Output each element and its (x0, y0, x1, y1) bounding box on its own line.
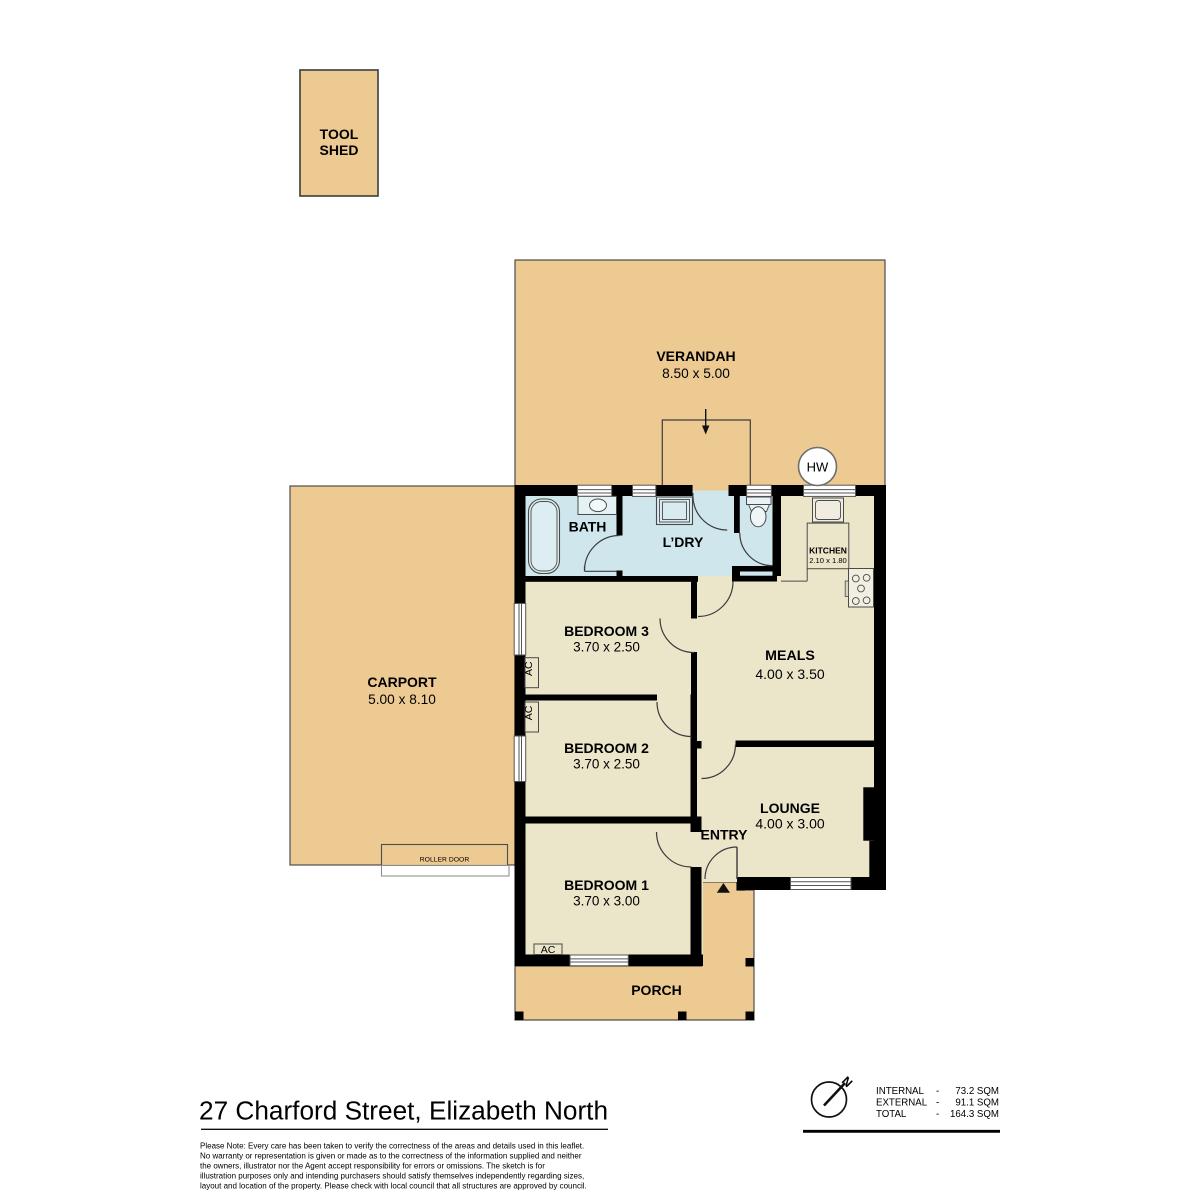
svg-text:5.00 x 8.10: 5.00 x 8.10 (368, 692, 436, 707)
svg-text:ENTRY: ENTRY (701, 827, 749, 843)
svg-text:SHED: SHED (320, 142, 359, 158)
svg-text:3.70 x 3.00: 3.70 x 3.00 (573, 894, 640, 909)
svg-text:layout and location of the pro: layout and location of the property. Ple… (200, 1182, 587, 1191)
svg-text:3.70 x 2.50: 3.70 x 2.50 (573, 640, 640, 655)
svg-text:illustration purposes only and: illustration purposes only and intending… (200, 1172, 584, 1181)
svg-text:-: - (936, 1098, 939, 1109)
svg-text:-: - (936, 1086, 939, 1097)
svg-text:KITCHEN: KITCHEN (809, 546, 847, 556)
svg-text:3.70 x 2.50: 3.70 x 2.50 (573, 757, 640, 772)
svg-text:4.00 x 3.00: 4.00 x 3.00 (755, 816, 824, 832)
svg-text:BATH: BATH (569, 519, 607, 535)
svg-text:L’DRY: L’DRY (663, 534, 704, 550)
svg-text:EXTERNAL: EXTERNAL (876, 1098, 928, 1109)
svg-text:BEDROOM 2: BEDROOM 2 (564, 740, 649, 756)
svg-text:PORCH: PORCH (631, 982, 682, 998)
svg-text:91.1 SQM: 91.1 SQM (955, 1098, 999, 1109)
svg-text:27 Charford Street, Elizabeth: 27 Charford Street, Elizabeth North (199, 1096, 608, 1126)
svg-text:HW: HW (807, 459, 829, 474)
svg-text:TOOL: TOOL (320, 126, 359, 142)
svg-text:164.3 SQM: 164.3 SQM (950, 1109, 999, 1120)
svg-text:2.10 x 1.80: 2.10 x 1.80 (809, 556, 847, 565)
svg-text:CARPORT: CARPORT (367, 674, 437, 690)
svg-text:LOUNGE: LOUNGE (760, 800, 820, 816)
svg-text:INTERNAL: INTERNAL (876, 1086, 925, 1097)
svg-text:73.2 SQM: 73.2 SQM (955, 1086, 999, 1097)
svg-text:TOTAL: TOTAL (876, 1109, 907, 1120)
svg-text:AC: AC (523, 705, 535, 720)
svg-text:the owners, illustrator nor th: the owners, illustrator nor the Agent ac… (200, 1162, 545, 1171)
svg-text:No warranty or representation: No warranty or representation is given o… (200, 1152, 582, 1161)
svg-text:MEALS: MEALS (765, 648, 815, 664)
svg-text:-: - (936, 1109, 939, 1120)
svg-text:AC: AC (523, 661, 535, 676)
svg-text:BEDROOM 1: BEDROOM 1 (564, 877, 649, 893)
svg-text:Please Note: Every care has be: Please Note: Every care has been taken t… (200, 1142, 584, 1151)
svg-text:BEDROOM 3: BEDROOM 3 (564, 623, 649, 639)
svg-text:ROLLER DOOR: ROLLER DOOR (420, 857, 470, 864)
svg-text:4.00 x 3.50: 4.00 x 3.50 (755, 666, 824, 682)
svg-text:8.50 x 5.00: 8.50 x 5.00 (662, 366, 730, 381)
svg-text:AC: AC (541, 944, 556, 956)
svg-text:VERANDAH: VERANDAH (656, 348, 735, 364)
